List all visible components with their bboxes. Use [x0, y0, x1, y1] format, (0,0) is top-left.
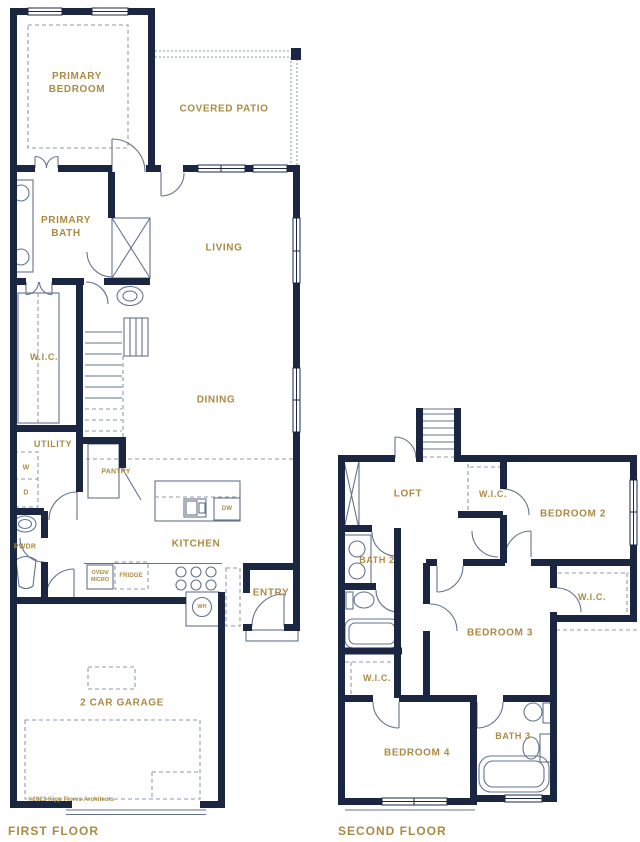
room-label-bath3: BATH 3: [495, 731, 530, 741]
room-label-kitchen: KITCHEN: [172, 539, 221, 550]
garage-door: [66, 810, 206, 815]
first-floor-doors: [20, 139, 284, 626]
fixture-label-dishwasher: DW: [222, 506, 232, 512]
room-label-wic-top: W.I.C.: [479, 489, 507, 499]
toilet-icon: [16, 557, 36, 589]
room-label-utility: UTILITY: [34, 439, 72, 449]
copyright-text: ©2023 Kipp Flores Architects: [28, 797, 114, 803]
room-label-primary-bath: PRIMARY BATH: [35, 214, 97, 240]
room-label-dining: DINING: [197, 395, 236, 406]
room-label-wic-right: W.I.C.: [578, 592, 606, 602]
room-label-pwdr: PWDR: [14, 544, 36, 551]
first-floor-plan: [10, 8, 301, 815]
sink-icon: [186, 501, 197, 515]
room-label-wic-left: W.I.C.: [363, 673, 391, 683]
fixture-label-washer: W: [23, 465, 30, 472]
room-label-bedroom3: BEDROOM 3: [467, 628, 533, 639]
room-label-living: LIVING: [206, 243, 243, 254]
room-label-loft: LOFT: [394, 489, 423, 500]
second-floor-title: SECOND FLOOR: [338, 824, 447, 838]
first-floor-title: FIRST FLOOR: [8, 824, 99, 838]
room-label-bedroom2: BEDROOM 2: [540, 509, 606, 520]
fixture-label-fridge: FRIDGE: [119, 573, 142, 579]
toilet-icon: [524, 703, 542, 721]
sink-icon: [14, 516, 36, 532]
first-floor-fixtures: [12, 180, 298, 815]
floor-plan-drawing: [0, 0, 640, 842]
fixture-label-oven-micro: OVEN/ MICRO: [88, 570, 112, 584]
first-floor-walls: [10, 8, 300, 808]
fixture-label-water-heater: WH: [197, 604, 206, 610]
cooktop-icon: [176, 567, 216, 590]
room-label-bedroom4: BEDROOM 4: [384, 748, 450, 759]
room-label-primary-bedroom: PRIMARY BEDROOM: [34, 70, 120, 96]
room-label-entry: ENTRY: [253, 588, 290, 599]
room-label-covered-patio: COVERED PATIO: [179, 104, 268, 115]
room-label-bath2: BATH 2: [359, 555, 394, 565]
porch: [246, 630, 298, 641]
second-floor-doors: [372, 437, 581, 728]
fixture-label-dryer: D: [23, 490, 28, 497]
toilet-icon: [354, 592, 374, 608]
sink-icon: [349, 563, 365, 579]
room-label-garage: 2 CAR GARAGE: [80, 698, 164, 709]
floor-plan-page: PRIMARY BEDROOM COVERED PATIO PRIMARY BA…: [0, 0, 640, 842]
stairs-icon: [85, 332, 122, 398]
first-floor-dashed-lines: [14, 25, 299, 799]
toilet-icon: [117, 287, 143, 306]
room-label-wic-1f: W.I.C.: [30, 352, 58, 362]
room-label-pantry: PANTRY: [101, 469, 130, 476]
